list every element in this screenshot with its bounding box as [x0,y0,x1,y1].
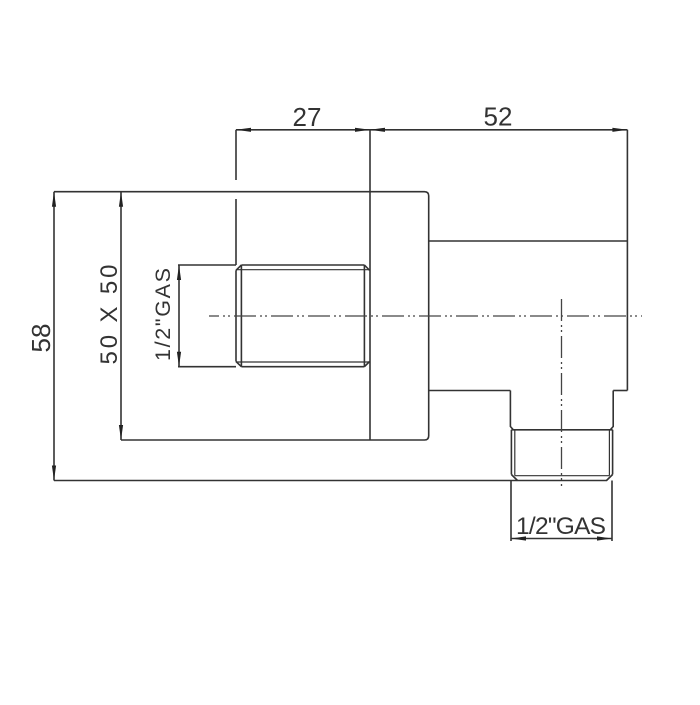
svg-text:27: 27 [293,102,322,132]
svg-text:52: 52 [484,102,513,132]
svg-text:1/2"GAS: 1/2"GAS [516,513,606,540]
svg-text:58: 58 [26,324,56,353]
svg-text:1/2"GAS: 1/2"GAS [151,268,175,361]
